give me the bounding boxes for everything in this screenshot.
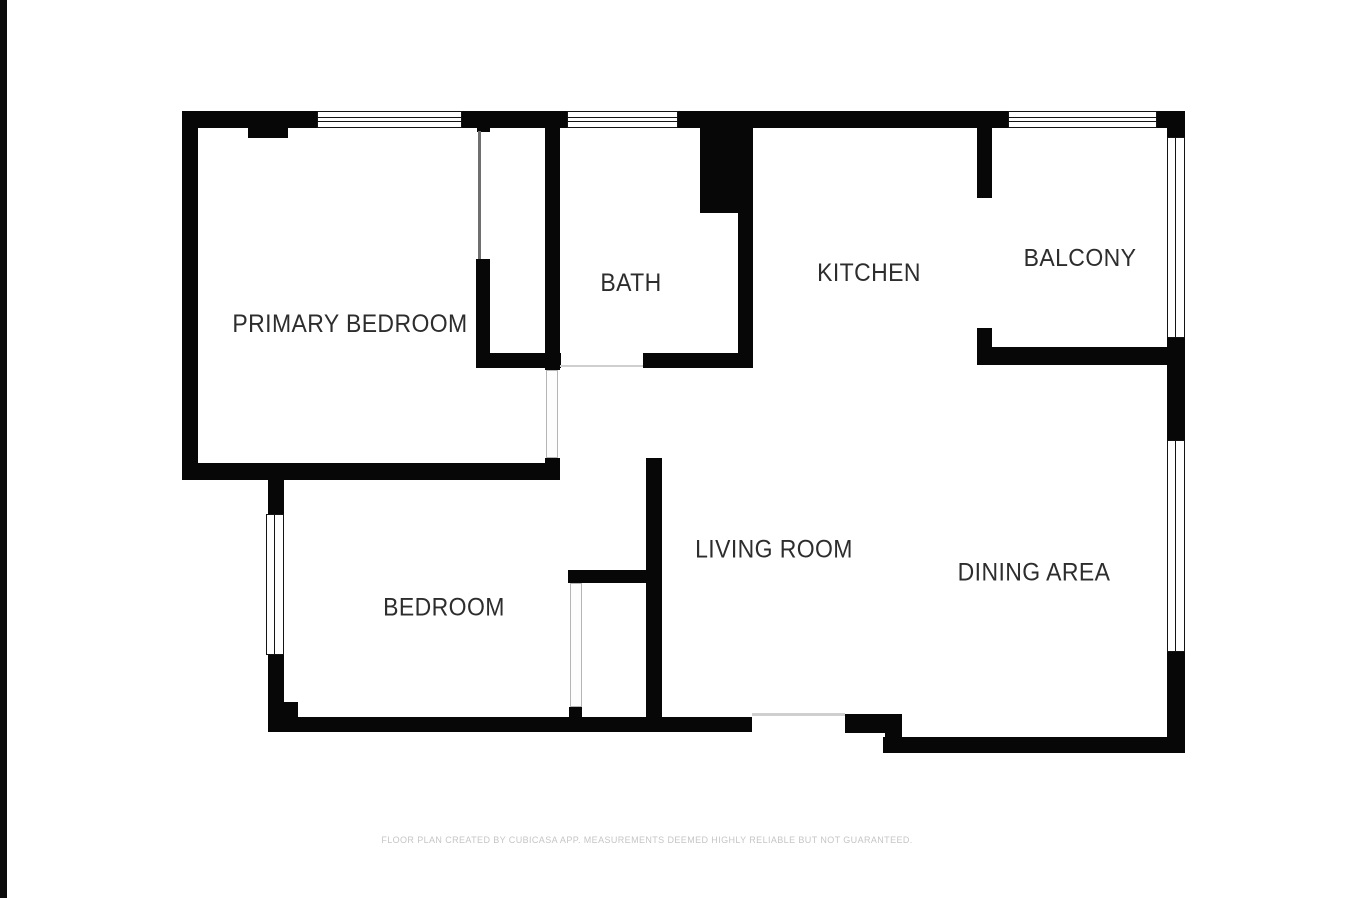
wall-bedroom-living-divider bbox=[646, 458, 662, 732]
door-threshold-bath bbox=[560, 365, 643, 367]
left-edge-bar bbox=[0, 0, 7, 898]
wall-closet-door-cap bbox=[569, 707, 582, 718]
window-pane-line bbox=[1009, 117, 1156, 118]
window-pane-line bbox=[568, 117, 677, 118]
wall-bedroom-step bbox=[284, 702, 298, 717]
room-label-primary-bedroom: PRIMARY BEDROOM bbox=[232, 309, 467, 339]
window-pane-line bbox=[318, 117, 461, 118]
wall-bedroom-top bbox=[182, 463, 560, 480]
room-label-dining-area: DINING AREA bbox=[958, 557, 1111, 587]
window-pane-line bbox=[318, 121, 461, 122]
door-primary-bedroom bbox=[546, 370, 558, 458]
room-label-kitchen: KITCHEN bbox=[817, 258, 921, 288]
window-pane-line bbox=[1009, 121, 1156, 122]
window-pane-line bbox=[274, 515, 275, 654]
wall-bath-bottom-west bbox=[477, 353, 561, 368]
wall-balcony-left-top bbox=[977, 127, 992, 198]
footer-text: FLOOR PLAN CREATED BY CUBICASA APP. MEAS… bbox=[347, 835, 947, 845]
room-label-balcony: BALCONY bbox=[1024, 243, 1137, 273]
wall-closet bbox=[476, 259, 490, 368]
window-pane-line bbox=[568, 121, 677, 122]
door-threshold-entry bbox=[752, 713, 845, 716]
window-pane-line bbox=[1175, 441, 1176, 651]
door-bedroom-closet bbox=[570, 583, 582, 707]
wall-closet-header bbox=[568, 570, 650, 583]
wall-primary-right bbox=[545, 111, 560, 370]
wall-bath-kitchen bbox=[738, 111, 753, 368]
window-dining-right bbox=[1167, 440, 1185, 652]
wall-balcony-bottom bbox=[977, 347, 1185, 365]
room-label-bedroom: BEDROOM bbox=[383, 592, 505, 622]
closet-slider-line bbox=[478, 131, 481, 259]
floor-plan-canvas: PRIMARY BEDROOM BATH KITCHEN BALCONY LIV… bbox=[0, 0, 1354, 898]
window-bedroom-left bbox=[266, 514, 284, 655]
room-label-living-room: LIVING ROOM bbox=[695, 534, 853, 564]
window-primary-bedroom bbox=[317, 111, 462, 128]
wall-entry-step bbox=[885, 732, 902, 753]
wall-bath-bottom-east bbox=[643, 353, 753, 368]
window-bath bbox=[567, 111, 678, 128]
wall-entry-block bbox=[845, 714, 902, 733]
wall-top-notch bbox=[248, 127, 288, 138]
wall-left bbox=[182, 111, 198, 480]
window-balcony-right bbox=[1167, 137, 1185, 338]
wall-main-bottom bbox=[268, 717, 752, 732]
wall-right-top-stub bbox=[1167, 111, 1185, 137]
window-pane-line bbox=[1175, 138, 1176, 337]
window-balcony-top bbox=[1008, 111, 1157, 128]
wall-dining-bottom bbox=[883, 737, 1185, 753]
wall-bath-duct bbox=[700, 127, 738, 213]
room-label-bath: BATH bbox=[600, 268, 661, 298]
